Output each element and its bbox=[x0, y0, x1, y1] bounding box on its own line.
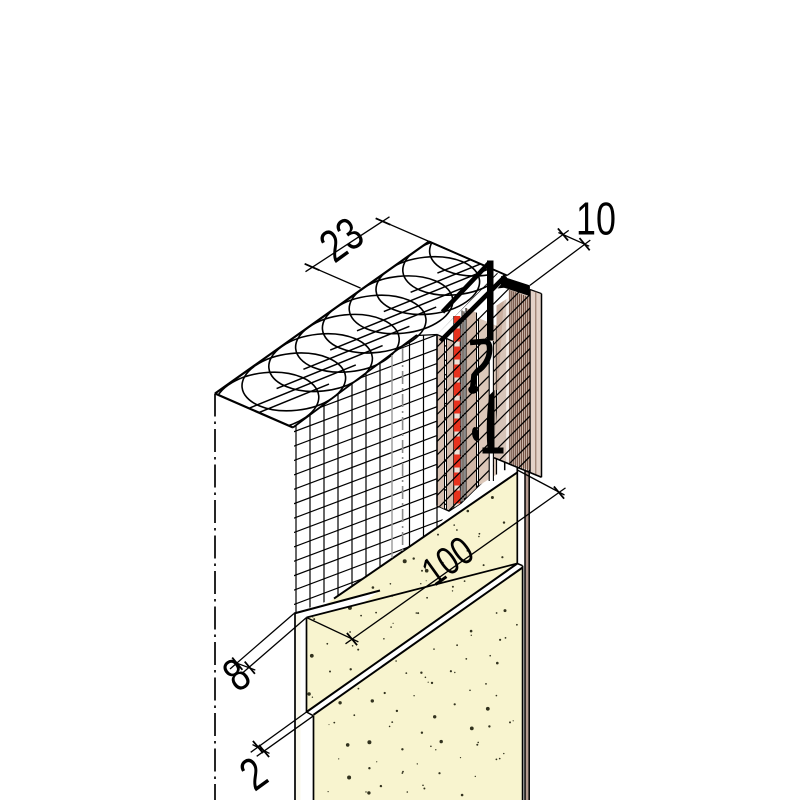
svg-text:10: 10 bbox=[576, 193, 616, 244]
